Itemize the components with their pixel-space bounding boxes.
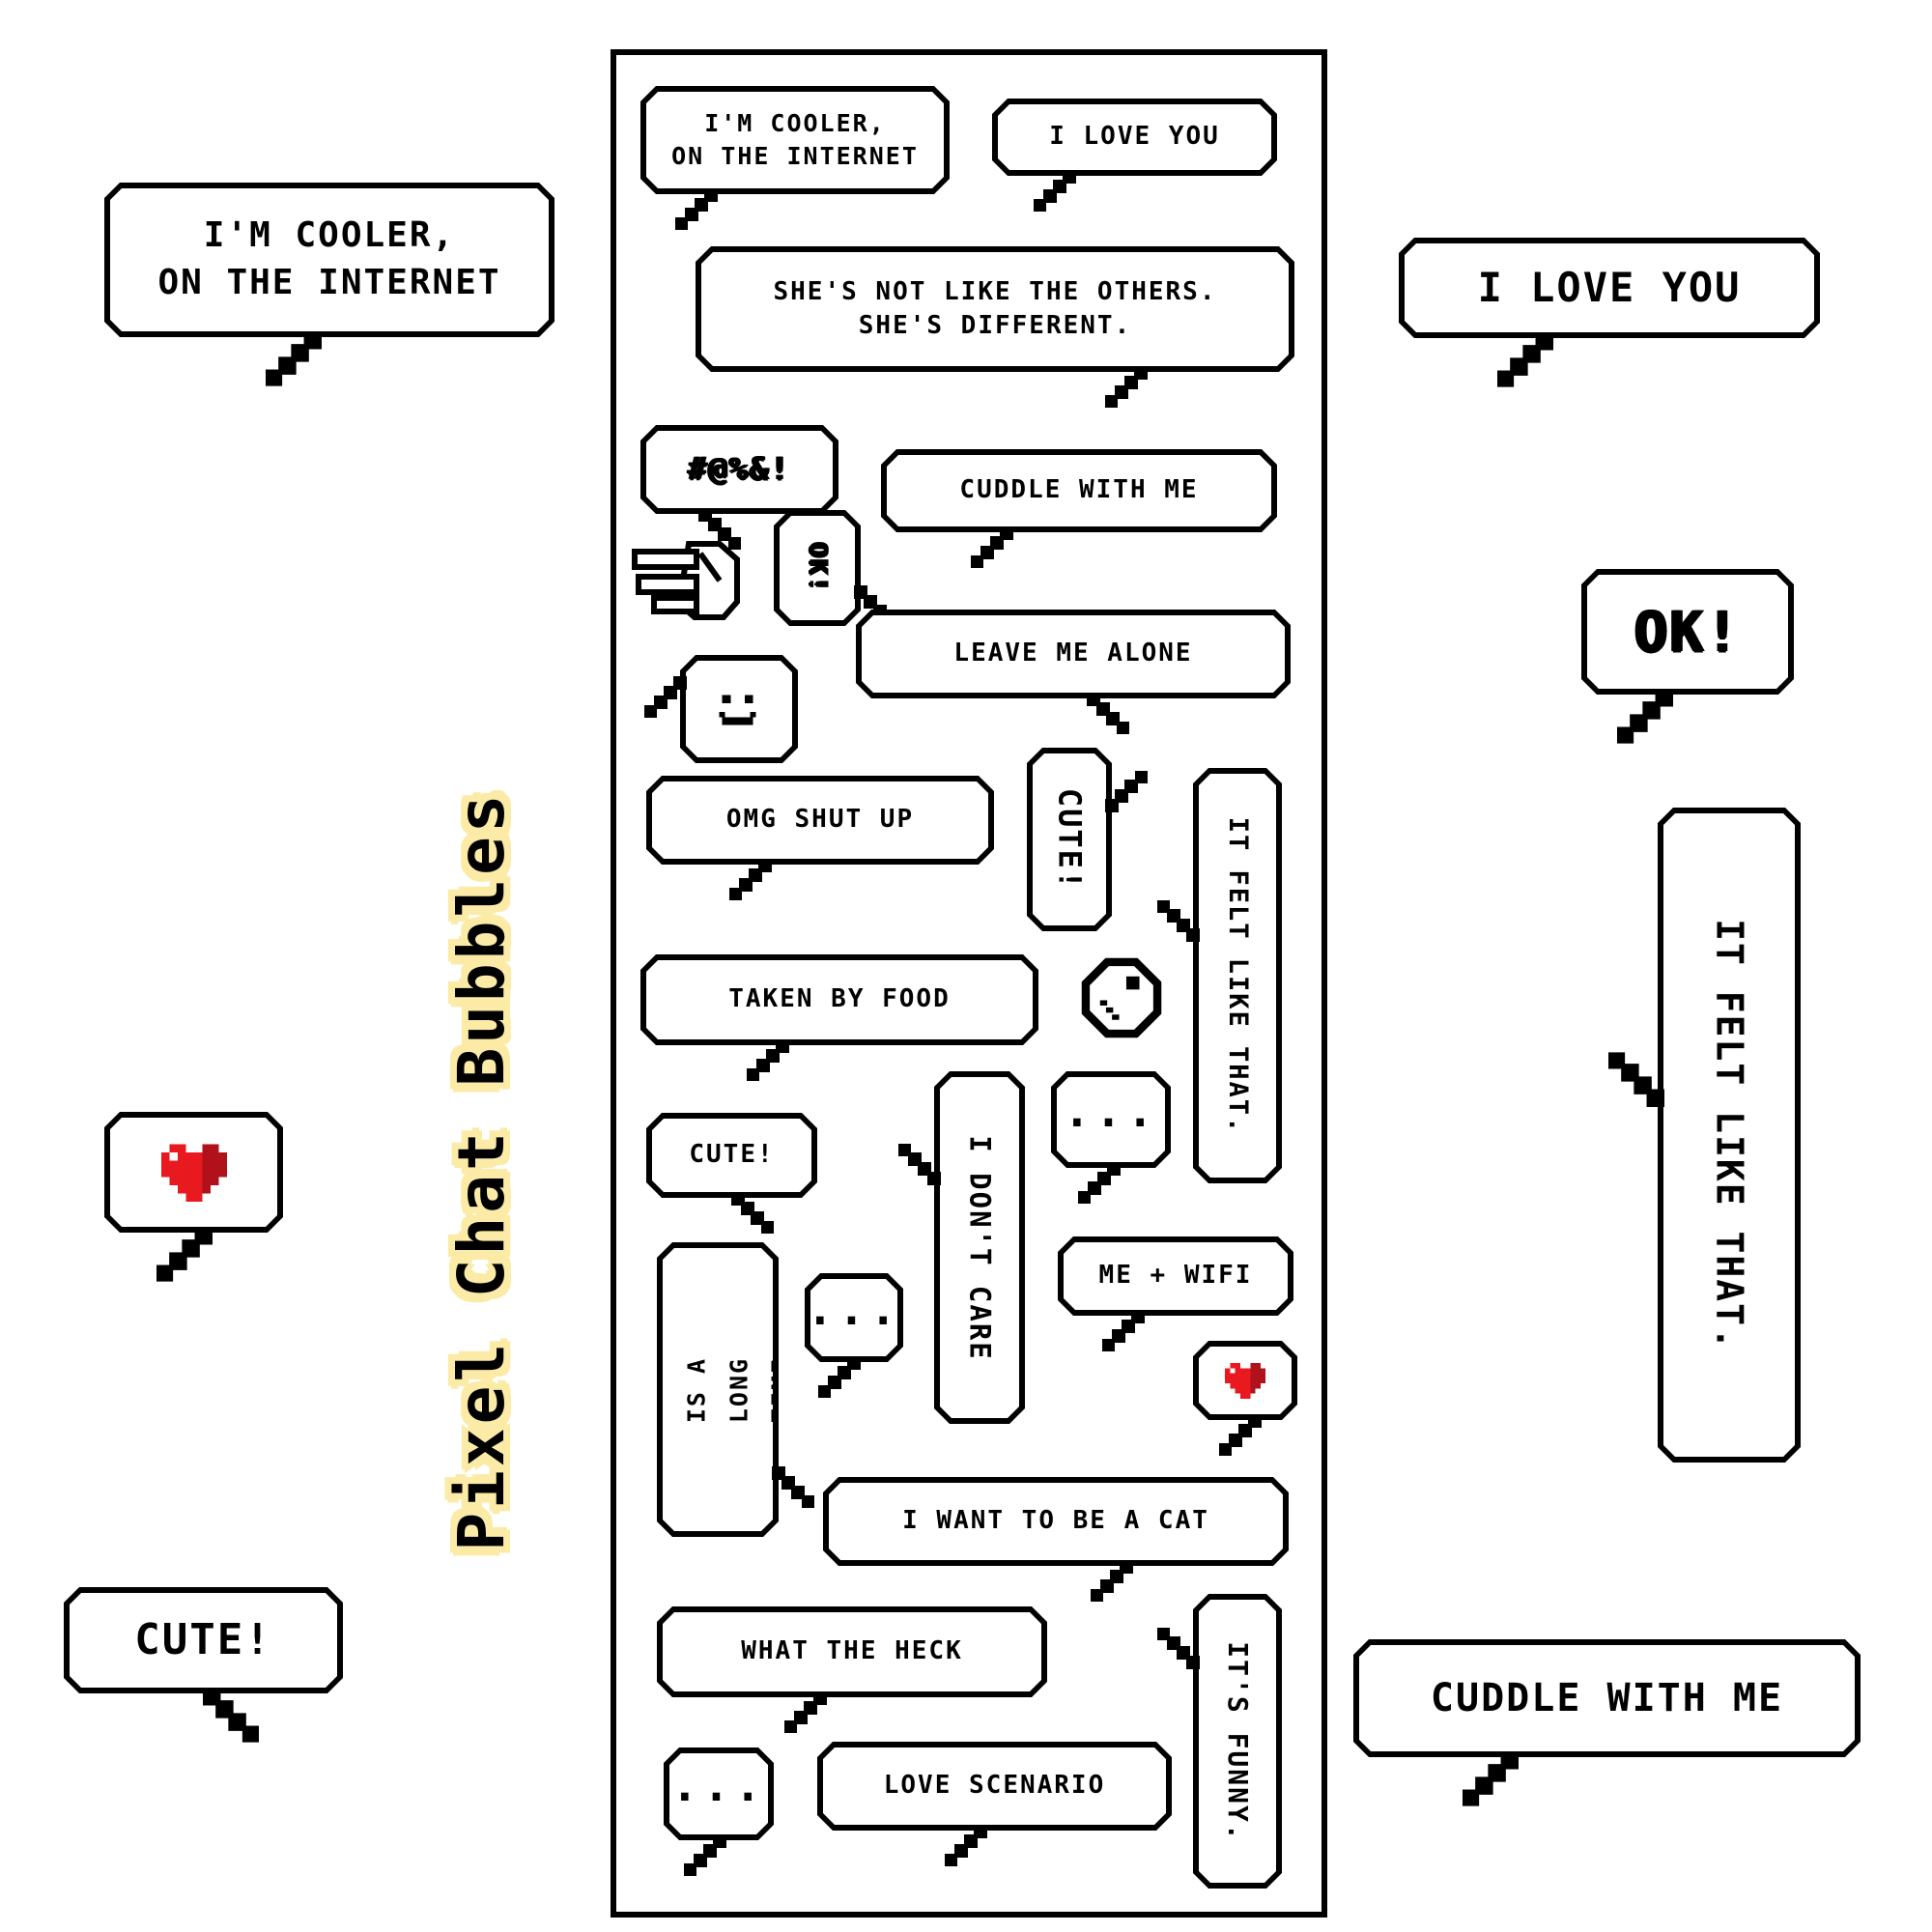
bubble-tail <box>266 331 322 387</box>
bubble-shes-not-like: SHE'S NOT LIKE THE OTHERS. SHE'S DIFFERE… <box>696 246 1294 372</box>
bubble-i-dont-care: I DON'T CARE <box>934 1071 1025 1424</box>
bubble-tail <box>675 188 718 231</box>
bubble-label: I LOVE YOU <box>1049 120 1220 154</box>
speech-bubble-body: WHAT THE HECK <box>663 1612 1041 1691</box>
bubble-tail <box>818 1356 861 1399</box>
bubble-cuddle-large: CUDDLE WITH ME <box>1353 1639 1861 1757</box>
bubble-want-to-be-cat: I WANT TO BE A CAT <box>823 1477 1289 1566</box>
speech-bubble-body: CUTE! <box>1033 753 1106 925</box>
bubble-label: CUDDLE WITH ME <box>959 473 1198 507</box>
speech-bubble-body: I LOVE YOU <box>1405 243 1814 332</box>
speech-bubble-frame: CUDDLE WITH ME <box>881 449 1277 532</box>
speech-bubble-frame: TAKEN BY FOOD <box>640 954 1038 1045</box>
bubble-what-the-heck: WHAT THE HECK <box>657 1606 1047 1697</box>
bubble-dots-left: ... <box>805 1273 903 1362</box>
speech-bubble-frame: CUTE! <box>64 1587 343 1693</box>
speech-bubble-frame: LOVE SCENARIO <box>817 1742 1172 1831</box>
speech-bubble-body: I LOVE YOU <box>998 104 1271 170</box>
speech-bubble-body: ... <box>1057 1077 1165 1162</box>
bubble-i-love-you-large: I LOVE YOU <box>1399 238 1820 338</box>
speech-bubble-frame: OK! <box>1581 569 1794 695</box>
bubble-grawlix: #@%&! <box>640 425 838 514</box>
speech-bubble-body: OK! <box>1587 575 1788 689</box>
speech-bubble-frame: ... <box>1051 1071 1171 1168</box>
sticker-sheet-canvas: I'M COOLER, ON THE INTERNETI LOVE YOUSHE… <box>0 0 1932 1932</box>
bubble-its-funny: IT'S FUNNY. <box>1193 1594 1282 1889</box>
bubble-label: I'M COOLER, ON THE INTERNET <box>157 213 500 306</box>
speech-bubble-frame: ... <box>805 1273 903 1362</box>
page-title: Pixel Chat Bubbles <box>418 417 544 1924</box>
speech-bubble-body: I'M COOLER, ON THE INTERNET <box>646 92 944 188</box>
bubble-tail <box>784 1691 827 1734</box>
bubble-tail <box>1105 366 1148 409</box>
speech-bubble-frame: I LOVE YOU <box>992 99 1277 176</box>
bubble-tail <box>1091 1560 1133 1603</box>
speech-bubble-frame: IT FELT LIKE THAT. <box>1193 768 1282 1183</box>
speech-bubble-frame: SHE'S NOT LIKE THE OTHERS. SHE'S DIFFERE… <box>696 246 1294 372</box>
bubble-tail <box>1087 693 1129 735</box>
bubble-tail <box>971 526 1013 569</box>
bubble-forever: FOREVER IS A LONG TIME <box>657 1242 779 1537</box>
speech-bubble-body: LOVE SCENARIO <box>823 1747 1166 1825</box>
peace-hand-icon <box>629 532 754 629</box>
bubble-tail <box>747 1039 789 1082</box>
bubble-tail <box>1078 1162 1121 1205</box>
bubble-label: I'M COOLER, ON THE INTERNET <box>671 107 919 173</box>
speech-bubble-frame: I LOVE YOU <box>1399 238 1820 338</box>
speech-bubble-frame: ... <box>664 1747 774 1840</box>
bubble-tail <box>731 1192 774 1235</box>
bubble-im-cooler-large: I'M COOLER, ON THE INTERNET <box>104 183 554 337</box>
bubble-label: ... <box>671 1755 766 1815</box>
bubble-label: I WANT TO BE A CAT <box>902 1504 1209 1538</box>
speech-bubble-body: ... <box>810 1279 897 1356</box>
bubble-ok-mini: OK! <box>774 510 861 626</box>
speech-bubble-body: I DON'T CARE <box>940 1077 1019 1418</box>
cookie-icon <box>1081 957 1162 1038</box>
bubble-tail <box>945 1825 987 1867</box>
bubble-cute-large: CUTE! <box>64 1587 343 1693</box>
bubble-tail <box>1034 170 1076 213</box>
speech-bubble-frame <box>680 655 798 763</box>
bubble-im-cooler: I'M COOLER, ON THE INTERNET <box>640 86 950 194</box>
speech-bubble-body: OK! <box>780 516 855 620</box>
heart-large-icon <box>161 1144 227 1202</box>
speech-bubble-body: CUDDLE WITH ME <box>1359 1645 1855 1751</box>
bubble-label: FOREVER IS A LONG TIME <box>634 1332 803 1447</box>
bubble-label: TAKEN BY FOOD <box>728 982 951 1016</box>
bubble-label: I DON'T CARE <box>960 1135 998 1361</box>
speech-bubble-body: I'M COOLER, ON THE INTERNET <box>110 188 549 331</box>
speech-bubble-body: CUTE! <box>70 1593 337 1688</box>
speech-bubble-body: SHE'S NOT LIKE THE OTHERS. SHE'S DIFFERE… <box>701 252 1289 366</box>
bubble-label: #@%&! <box>688 448 790 490</box>
bubble-cute-small: CUTE! <box>646 1113 817 1198</box>
speech-bubble-body: CUDDLE WITH ME <box>887 455 1271 526</box>
bubble-label: IT FELT LIKE THAT. <box>1704 919 1753 1351</box>
bubble-label: OK! <box>1634 594 1742 669</box>
bubble-dots-middle: ... <box>1051 1071 1171 1168</box>
speech-bubble-body: FOREVER IS A LONG TIME <box>663 1248 773 1531</box>
speech-bubble-body <box>1199 1347 1292 1414</box>
bubble-tail <box>1102 1310 1145 1352</box>
speech-bubble-frame: CUTE! <box>1027 748 1112 931</box>
smiley-icon <box>705 678 773 740</box>
bubble-label: IT FELT LIKE THAT. <box>1220 817 1255 1135</box>
speech-bubble-body: LEAVE ME ALONE <box>862 615 1285 693</box>
speech-bubble-body: TAKEN BY FOOD <box>646 960 1033 1039</box>
speech-bubble-frame: CUTE! <box>646 1113 817 1198</box>
speech-bubble-frame: I WANT TO BE A CAT <box>823 1477 1289 1566</box>
bubble-smiley <box>680 655 798 763</box>
bubble-label: OK! <box>800 543 834 594</box>
bubble-tail <box>729 859 772 901</box>
speech-bubble-body: IT'S FUNNY. <box>1199 1600 1276 1883</box>
bubble-taken-by-food: TAKEN BY FOOD <box>640 954 1038 1045</box>
speech-bubble-frame: I'M COOLER, ON THE INTERNET <box>640 86 950 194</box>
bubble-label: ME + WIFI <box>1099 1259 1253 1293</box>
bubble-label: ... <box>807 1279 901 1339</box>
speech-bubble-frame: I'M COOLER, ON THE INTERNET <box>104 183 554 337</box>
bubble-love-scenario: LOVE SCENARIO <box>817 1742 1172 1831</box>
bubble-cute-vertical: CUTE! <box>1027 748 1112 931</box>
speech-bubble-frame: OMG SHUT UP <box>646 776 994 865</box>
bubble-label: WHAT THE HECK <box>741 1634 963 1668</box>
bubble-i-love-you: I LOVE YOU <box>992 99 1277 176</box>
bubble-tail <box>1608 1051 1664 1107</box>
speech-bubble-frame <box>1193 1341 1297 1420</box>
speech-bubble-body: I WANT TO BE A CAT <box>829 1483 1283 1560</box>
speech-bubble-body: CUTE! <box>652 1119 811 1192</box>
cookie-icon-bubble <box>1081 957 1162 1038</box>
bubble-label: CUTE! <box>134 1611 271 1668</box>
speech-bubble-frame <box>104 1112 283 1233</box>
bubble-label: LOVE SCENARIO <box>884 1769 1106 1803</box>
speech-bubble-body: IT FELT LIKE THAT. <box>1199 774 1276 1178</box>
speech-bubble-frame: IT FELT LIKE THAT. <box>1658 808 1801 1463</box>
bubble-label: ... <box>1064 1081 1158 1141</box>
speech-bubble-body <box>686 661 792 757</box>
speech-bubble-frame: #@%&! <box>640 425 838 514</box>
bubble-heart-mini <box>1193 1341 1297 1420</box>
bubble-tail <box>1617 689 1673 745</box>
speech-bubble-frame: ME + WIFI <box>1058 1236 1293 1316</box>
speech-bubble-body: OMG SHUT UP <box>652 781 988 859</box>
heart-small-icon <box>1225 1363 1265 1399</box>
bubble-heart-large <box>104 1112 283 1233</box>
speech-bubble-frame: FOREVER IS A LONG TIME <box>657 1242 779 1537</box>
bubble-tail <box>156 1227 213 1283</box>
speech-bubble-frame: WHAT THE HECK <box>657 1606 1047 1697</box>
bubble-label: IT'S FUNNY. <box>1219 1641 1256 1841</box>
sticker-sheet-panel: I'M COOLER, ON THE INTERNETI LOVE YOUSHE… <box>611 49 1327 1918</box>
speech-bubble-frame: IT'S FUNNY. <box>1193 1594 1282 1889</box>
bubble-label: CUTE! <box>1048 788 1090 891</box>
bubble-me-wifi: ME + WIFI <box>1058 1236 1293 1316</box>
bubble-ok-large: OK! <box>1581 569 1794 695</box>
speech-bubble-body: #@%&! <box>646 431 833 508</box>
speech-bubble-body: ME + WIFI <box>1064 1242 1288 1310</box>
bubble-label: CUTE! <box>689 1138 774 1172</box>
bubble-cuddle-with-me: CUDDLE WITH ME <box>881 449 1277 532</box>
speech-bubble-frame: CUDDLE WITH ME <box>1353 1639 1861 1757</box>
bubble-omg-shut-up: OMG SHUT UP <box>646 776 994 865</box>
bubble-tail <box>1497 332 1553 388</box>
bubble-it-felt-large: IT FELT LIKE THAT. <box>1658 808 1801 1463</box>
bubble-label: LEAVE ME ALONE <box>953 637 1192 670</box>
bubble-tail <box>1219 1414 1262 1457</box>
speech-bubble-frame: OK! <box>774 510 861 626</box>
speech-bubble-body <box>110 1118 277 1227</box>
bubble-label: OMG SHUT UP <box>726 803 914 837</box>
bubble-label: SHE'S NOT LIKE THE OTHERS. SHE'S DIFFERE… <box>774 275 1217 343</box>
bubble-dots-bottom: ... <box>664 1747 774 1840</box>
speech-bubble-frame: I DON'T CARE <box>934 1071 1025 1424</box>
bubble-label: CUDDLE WITH ME <box>1431 1672 1783 1724</box>
bubble-tail <box>203 1688 259 1744</box>
speech-bubble-frame: LEAVE ME ALONE <box>856 610 1291 698</box>
bubble-label: I LOVE YOU <box>1478 261 1742 316</box>
bubble-leave-me-alone: LEAVE ME ALONE <box>856 610 1291 698</box>
speech-bubble-body: IT FELT LIKE THAT. <box>1663 813 1795 1457</box>
bubble-it-felt-vertical: IT FELT LIKE THAT. <box>1193 768 1282 1183</box>
bubble-tail <box>684 1834 726 1877</box>
peace-hand <box>629 532 754 629</box>
bubble-tail <box>1463 1751 1519 1807</box>
speech-bubble-body: ... <box>669 1753 768 1834</box>
